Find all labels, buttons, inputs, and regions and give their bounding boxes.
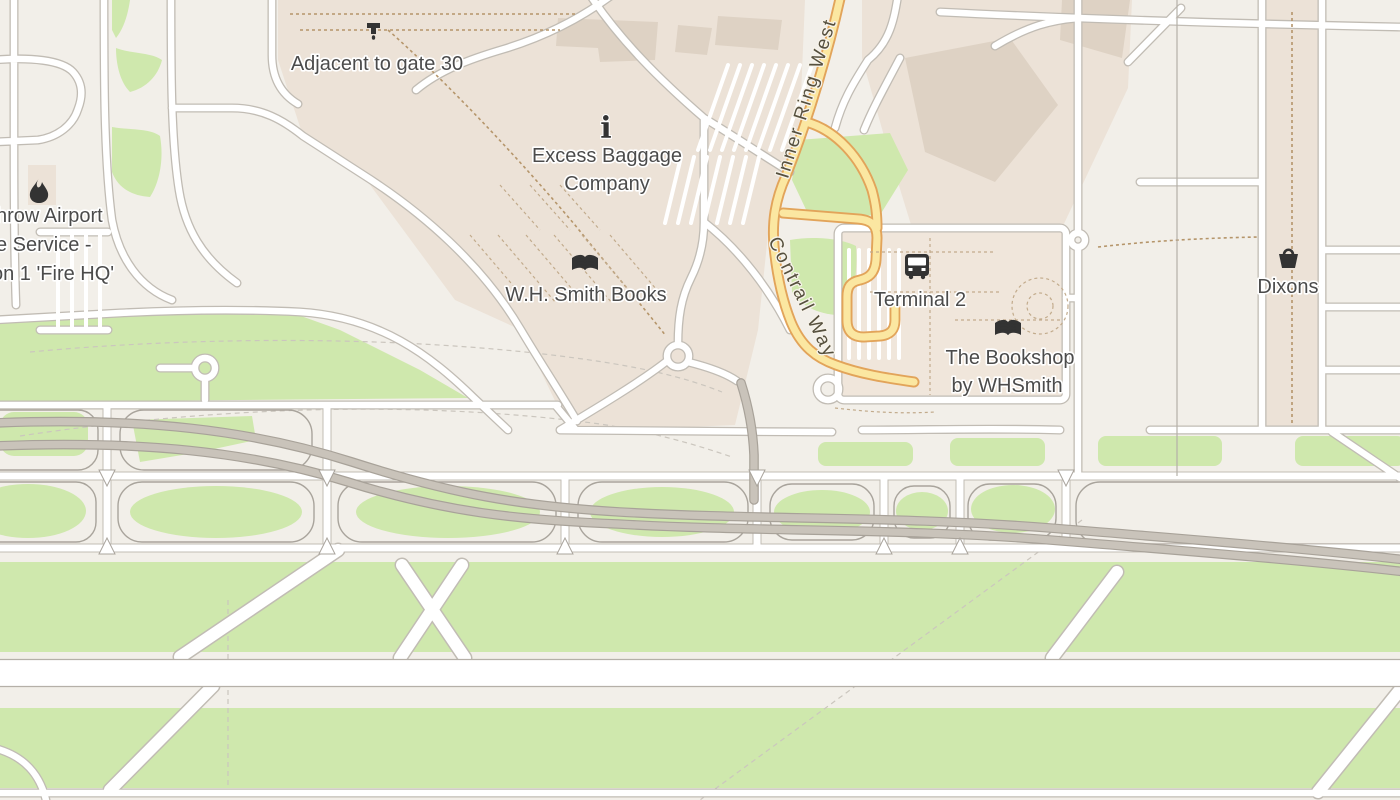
map-viewport[interactable]: Inner Ring West Contrail Way hrow Airpor… (0, 0, 1400, 800)
book-icon (995, 320, 1021, 335)
svg-text:hrow Airport: hrow Airport (0, 205, 103, 227)
svg-text:Excess Baggage: Excess Baggage (532, 145, 682, 167)
svg-text:by WHSmith: by WHSmith (951, 375, 1062, 397)
svg-text:on 1 'Fire HQ': on 1 'Fire HQ' (0, 263, 114, 285)
svg-text:Terminal 2: Terminal 2 (874, 289, 966, 311)
svg-text:Dixons: Dixons (1257, 276, 1318, 298)
information-icon: i (600, 111, 611, 146)
svg-text:e Service -: e Service - (0, 234, 92, 256)
runway (0, 660, 1400, 687)
svg-text:The Bookshop: The Bookshop (946, 347, 1075, 369)
book-icon (572, 255, 598, 270)
map-canvas[interactable]: Inner Ring West Contrail Way hrow Airpor… (0, 0, 1400, 800)
svg-text:Company: Company (564, 173, 650, 195)
svg-text:Adjacent to gate 30: Adjacent to gate 30 (291, 53, 463, 75)
bus-stop-icon (905, 254, 929, 279)
svg-text:W.H. Smith Books: W.H. Smith Books (505, 284, 666, 306)
